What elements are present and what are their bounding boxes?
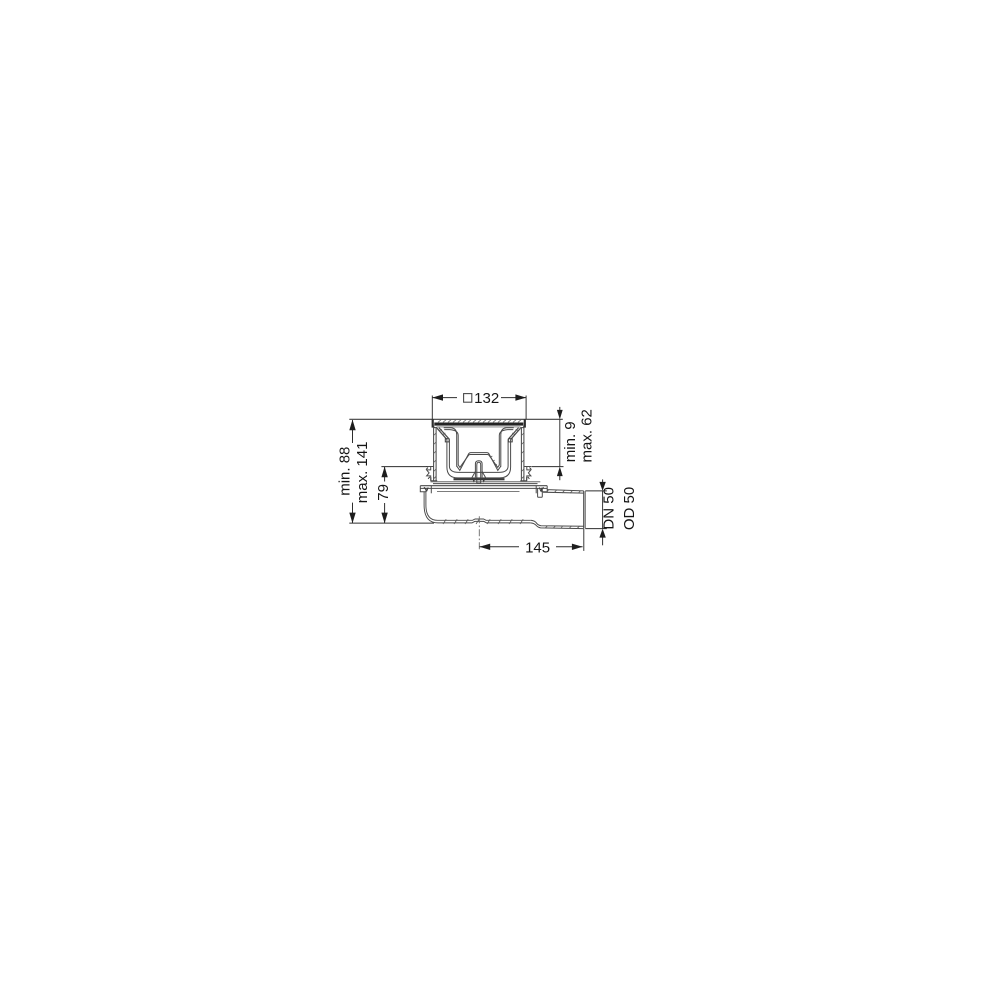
svg-text:DN 50: DN 50 [601, 487, 618, 530]
svg-text:145: 145 [525, 540, 550, 557]
svg-text:min. 88: min. 88 [337, 447, 354, 496]
svg-text:79: 79 [375, 484, 392, 501]
svg-text:max. 62: max. 62 [579, 409, 596, 462]
svg-text:max. 141: max. 141 [354, 442, 371, 504]
svg-text:min. 9: min. 9 [562, 421, 579, 462]
svg-text:132: 132 [474, 390, 499, 407]
svg-text:OD 50: OD 50 [621, 487, 638, 530]
